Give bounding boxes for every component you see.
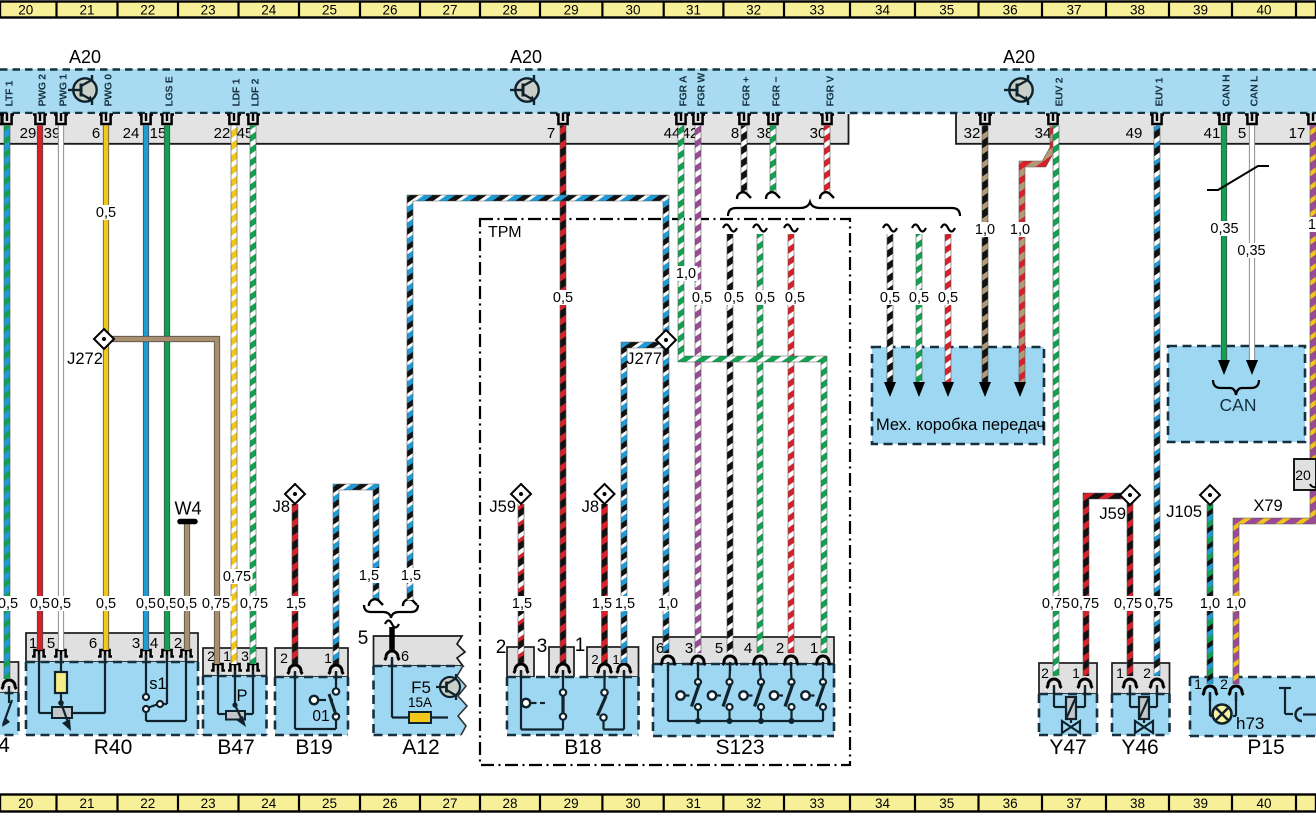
svg-text:J8: J8 [582,498,599,516]
svg-text:h73: h73 [1236,714,1264,733]
svg-text:0,35: 0,35 [1237,243,1265,259]
svg-text:Y46: Y46 [1121,736,1158,759]
svg-text:1: 1 [223,648,231,664]
svg-text:0,5: 0,5 [724,290,744,306]
svg-text:4: 4 [744,640,752,657]
svg-text:0,5: 0,5 [880,290,900,306]
svg-text:5: 5 [715,640,723,657]
svg-text:LDF 2: LDF 2 [250,78,262,106]
svg-text:1: 1 [1116,665,1124,681]
svg-text:40: 40 [1256,3,1271,18]
svg-text:30: 30 [625,796,640,811]
svg-text:41: 41 [1204,125,1221,142]
svg-text:32: 32 [746,796,761,811]
svg-text:FGR V: FGR V [825,76,837,107]
svg-text:2: 2 [280,650,288,666]
svg-text:J105: J105 [1166,503,1202,521]
svg-text:s1: s1 [149,675,166,693]
svg-text:20: 20 [18,3,33,18]
svg-text:33: 33 [809,796,824,811]
svg-text:0,75: 0,75 [240,596,268,612]
svg-text:25: 25 [322,796,337,811]
svg-text:1,0: 1,0 [1308,217,1316,233]
svg-text:01: 01 [312,708,329,725]
svg-text:35: 35 [939,796,954,811]
svg-text:1: 1 [575,635,586,656]
svg-text:0,5: 0,5 [96,596,116,612]
svg-text:0,5: 0,5 [96,205,116,221]
svg-text:5: 5 [1238,125,1246,142]
svg-text:40: 40 [1256,796,1271,811]
svg-text:0,75: 0,75 [202,596,230,612]
svg-text:3: 3 [241,648,249,664]
svg-text:39: 39 [1193,796,1208,811]
svg-text:32: 32 [964,125,981,142]
svg-text:8: 8 [731,125,739,142]
svg-text:31: 31 [686,3,701,18]
svg-text:3: 3 [132,635,140,652]
svg-text:LTF 1: LTF 1 [4,80,16,106]
svg-text:31: 31 [686,796,701,811]
svg-text:Y47: Y47 [1049,736,1086,759]
svg-text:34: 34 [1035,125,1052,142]
svg-text:R40: R40 [94,736,133,759]
svg-text:7: 7 [547,125,555,142]
svg-text:B47: B47 [217,736,254,759]
svg-text:1,0: 1,0 [1010,222,1030,238]
svg-text:PWG 1: PWG 1 [58,74,70,107]
svg-text:J272: J272 [67,350,103,368]
svg-text:0,5: 0,5 [553,290,573,306]
svg-text:0,75: 0,75 [1114,596,1142,612]
svg-text:A20: A20 [510,47,542,67]
svg-text:38: 38 [1130,3,1145,18]
svg-text:23: 23 [201,3,216,18]
svg-text:0,5: 0,5 [136,596,156,612]
svg-text:ТРМ: ТРМ [488,224,522,241]
svg-text:49: 49 [1126,125,1143,142]
svg-text:X79: X79 [1253,497,1282,515]
svg-text:CAN: CAN [1220,395,1257,415]
svg-text:1,0: 1,0 [1226,596,1246,612]
svg-text:FGR +: FGR + [741,77,753,107]
svg-text:1: 1 [612,652,619,667]
svg-text:23: 23 [201,796,216,811]
svg-text:1,5: 1,5 [615,596,635,612]
svg-text:B18: B18 [564,736,601,759]
svg-text:17: 17 [1289,125,1306,142]
svg-text:2: 2 [174,635,182,652]
svg-text:27: 27 [442,796,457,811]
svg-text:1,0: 1,0 [1200,596,1220,612]
svg-text:26: 26 [382,796,397,811]
svg-text:28: 28 [502,796,517,811]
svg-text:39: 39 [44,125,61,142]
svg-text:5: 5 [47,635,55,652]
svg-text:34: 34 [875,796,891,811]
svg-text:A12: A12 [402,736,439,759]
svg-text:PWG 0: PWG 0 [103,74,115,107]
svg-text:0,75: 0,75 [1071,596,1099,612]
svg-text:6: 6 [89,635,97,652]
svg-text:1: 1 [810,640,818,657]
svg-text:P: P [236,687,247,705]
svg-text:0,5: 0,5 [157,596,177,612]
svg-text:S123: S123 [715,736,764,759]
svg-text:3: 3 [537,636,548,657]
svg-text:FGR −: FGR − [771,77,783,107]
svg-text:J277: J277 [626,350,662,368]
svg-text:15A: 15A [408,695,432,710]
svg-text:2: 2 [496,637,507,658]
svg-text:26: 26 [382,3,397,18]
svg-text:21: 21 [79,3,94,18]
svg-text:38: 38 [1130,796,1145,811]
svg-text:24: 24 [123,125,140,142]
svg-text:6: 6 [401,649,409,665]
svg-text:1,5: 1,5 [401,568,421,584]
svg-text:3: 3 [685,640,693,657]
svg-text:2: 2 [1143,665,1151,681]
svg-text:1: 1 [324,650,332,666]
svg-text:J8: J8 [273,498,290,516]
svg-text:P15: P15 [1247,736,1284,759]
svg-text:20: 20 [18,796,33,811]
svg-text:32: 32 [746,3,761,18]
svg-text:CAN L: CAN L [1249,75,1261,106]
svg-text:0,5: 0,5 [692,290,712,306]
svg-text:2: 2 [1041,665,1049,681]
svg-text:1,0: 1,0 [658,596,678,612]
svg-text:Мех. коробка передач: Мех. коробка передач [876,416,1045,434]
svg-text:W4: W4 [175,499,202,519]
svg-text:0,5: 0,5 [755,290,775,306]
svg-text:21: 21 [79,796,94,811]
svg-text:22: 22 [140,3,155,18]
svg-text:24: 24 [261,3,277,18]
svg-text:15: 15 [150,125,167,142]
svg-text:5: 5 [358,628,369,649]
svg-text:0,5: 0,5 [909,290,929,306]
svg-text:A20: A20 [69,47,101,67]
svg-text:0,5: 0,5 [938,290,958,306]
svg-text:1,0: 1,0 [975,222,995,238]
svg-text:0,5: 0,5 [51,596,71,612]
svg-text:25: 25 [322,3,337,18]
svg-text:0,75: 0,75 [223,569,251,585]
svg-text:A20: A20 [1003,47,1035,67]
svg-text:24: 24 [261,796,277,811]
svg-text:2: 2 [591,652,598,667]
svg-text:34: 34 [875,3,891,18]
svg-text:29: 29 [20,125,37,142]
svg-text:1,0: 1,0 [676,266,696,282]
svg-text:FGR A: FGR A [678,75,690,106]
svg-text:EUV 2: EUV 2 [1054,77,1066,106]
svg-text:22: 22 [140,796,155,811]
svg-text:29: 29 [564,796,579,811]
svg-text:27: 27 [442,3,457,18]
svg-text:30: 30 [625,3,640,18]
svg-text:B19: B19 [295,736,332,759]
svg-text:37: 37 [1066,796,1081,811]
svg-text:EUV 1: EUV 1 [1154,77,1166,106]
svg-text:20: 20 [1295,467,1311,483]
svg-text:1: 1 [1072,665,1080,681]
svg-text:J59: J59 [1099,505,1126,523]
svg-text:1,5: 1,5 [592,596,612,612]
svg-text:0,5: 0,5 [0,596,18,612]
svg-text:22: 22 [214,125,231,142]
svg-text:0,5: 0,5 [785,290,805,306]
svg-text:39: 39 [1193,3,1208,18]
svg-text:36: 36 [1003,3,1018,18]
svg-text:0,75: 0,75 [1145,596,1173,612]
svg-text:4: 4 [0,734,10,757]
svg-text:2: 2 [776,640,784,657]
svg-text:FGR W: FGR W [696,73,708,107]
svg-text:1,5: 1,5 [286,596,306,612]
svg-text:J59: J59 [489,498,516,516]
svg-text:0,5: 0,5 [177,596,197,612]
svg-text:1: 1 [1194,676,1202,692]
svg-text:6: 6 [92,125,100,142]
svg-text:4: 4 [150,635,158,652]
svg-text:0,5: 0,5 [30,596,50,612]
svg-text:0,75: 0,75 [1042,596,1070,612]
svg-text:CAN H: CAN H [1221,75,1233,107]
svg-text:29: 29 [564,3,579,18]
svg-text:PWG 2: PWG 2 [37,74,49,107]
svg-text:36: 36 [1003,796,1018,811]
svg-text:28: 28 [502,3,517,18]
svg-text:33: 33 [809,3,824,18]
svg-text:35: 35 [939,3,954,18]
svg-text:1,5: 1,5 [512,596,532,612]
svg-text:1,5: 1,5 [359,568,379,584]
svg-text:LGS E: LGS E [164,76,176,106]
svg-text:2: 2 [1220,676,1228,692]
svg-text:0,35: 0,35 [1210,221,1238,237]
svg-text:LDF 1: LDF 1 [231,78,243,106]
svg-text:37: 37 [1066,3,1081,18]
svg-text:1: 1 [29,635,37,652]
